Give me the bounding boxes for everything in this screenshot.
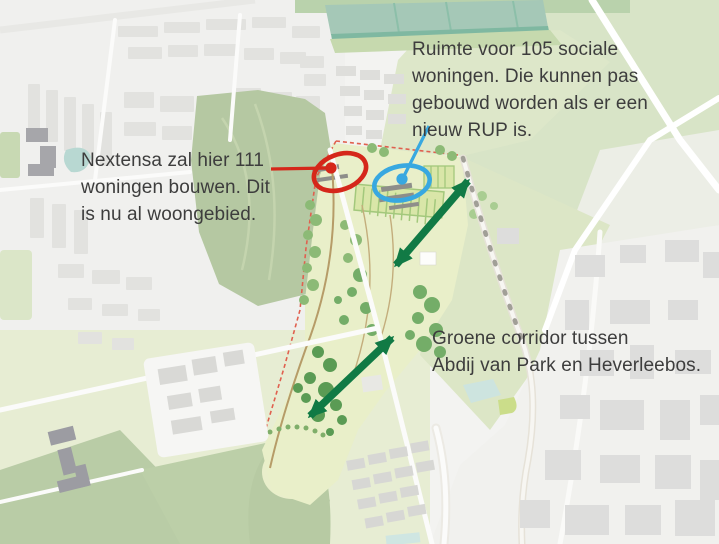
red-dot — [325, 162, 336, 173]
note-social-housing: Ruimte voor 105 sociale woningen. Die ku… — [412, 36, 648, 144]
annotated-map-figure: Ruimte voor 105 sociale woningen. Die ku… — [0, 0, 719, 544]
note-green-corridor: Groene corridor tussen Abdij van Park en… — [432, 325, 701, 379]
red-leader-line — [271, 168, 330, 169]
white-building — [420, 252, 436, 265]
note-nextensa-housing: Nextensa zal hier 111 woningen bouwen. D… — [81, 147, 270, 228]
blue-dot — [396, 173, 407, 184]
